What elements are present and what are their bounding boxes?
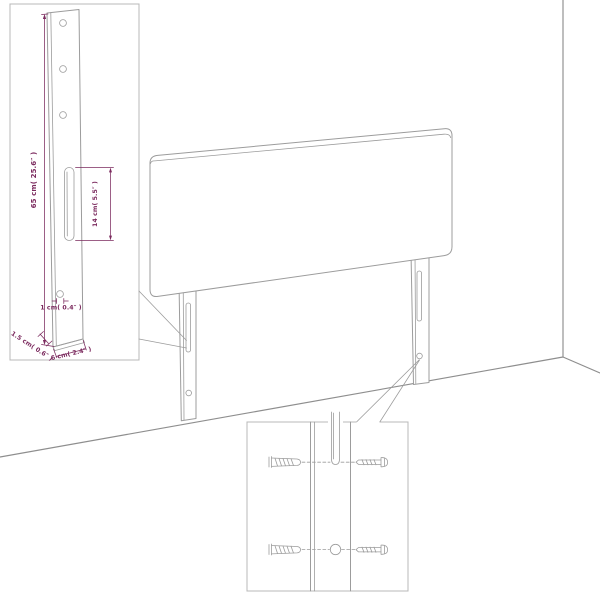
mounting-callout-line: [380, 360, 420, 422]
product-diagram: 65 cm( 25.6″ ) 14 cm( 5.5″ ) 1 cm( 0.4″ …: [0, 0, 600, 600]
mounting-inset-box: [247, 422, 408, 591]
floor-line-right: [563, 357, 600, 373]
hole-diameter-label: 1 cm( 0.4″ ): [40, 305, 82, 312]
headboard-right-leg: [411, 250, 429, 385]
left-leg-body: [179, 280, 196, 421]
headboard-left-leg: [179, 280, 196, 421]
leg-post-drawing: [47, 10, 85, 351]
mounting-inset: [247, 412, 408, 591]
slot-length-label: 14 cm( 5.5″ ): [92, 181, 99, 227]
headboard: [150, 129, 452, 297]
headboard-front-face: [150, 129, 452, 297]
dimension-inset: 65 cm( 25.6″ ) 14 cm( 5.5″ ) 1 cm( 0.4″ …: [10, 4, 139, 363]
post-outline: [47, 10, 83, 348]
post-height-label: 65 cm( 25.6″ ): [30, 152, 38, 209]
mounting-callout-line: [357, 360, 420, 422]
right-leg-body: [411, 250, 429, 385]
inset-callout-line: [139, 339, 187, 348]
